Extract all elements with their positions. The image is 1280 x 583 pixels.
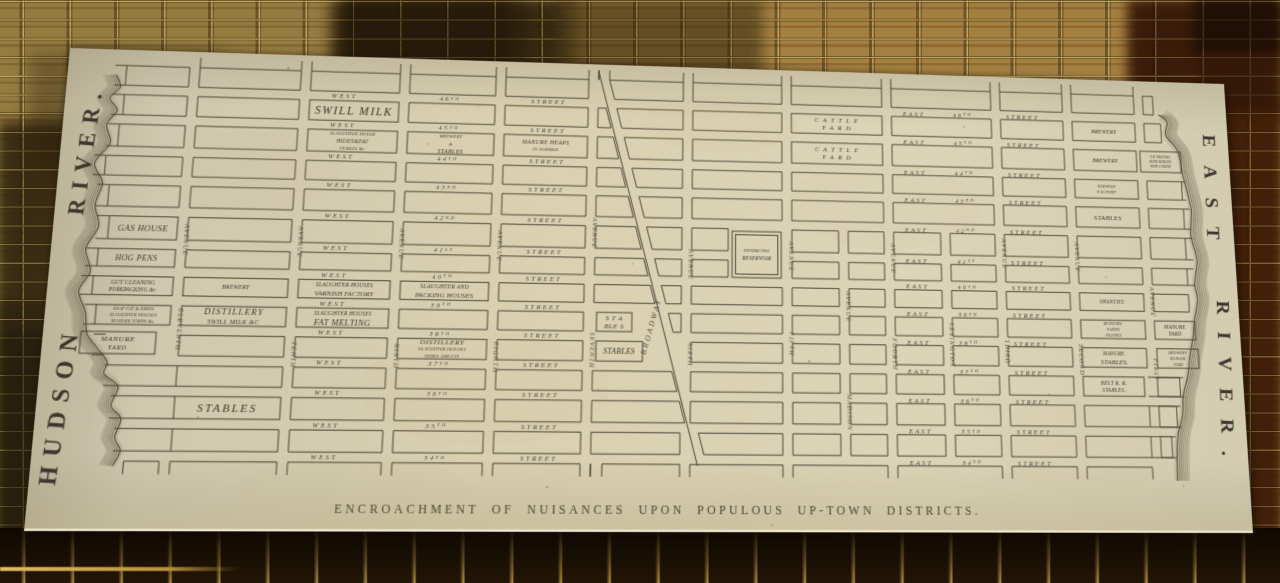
svg-text:FAT MELTING: FAT MELTING xyxy=(1149,155,1170,159)
svg-text:AVENUE: AVENUE xyxy=(1000,238,1008,269)
svg-text:WEST: WEST xyxy=(332,93,358,100)
svg-text:YARDS: YARDS xyxy=(1107,327,1121,332)
svg-text:C A T T L E: C A T T L E xyxy=(815,118,860,126)
svg-text:STABLES: STABLES xyxy=(603,347,635,356)
svg-text:WEST: WEST xyxy=(312,422,339,430)
svg-text:STREET: STREET xyxy=(525,304,562,312)
svg-text:EAST: EAST xyxy=(907,368,931,375)
svg-text:SHANTIES: SHANTIES xyxy=(1105,334,1121,338)
svg-text:C A T T L E: C A T T L E xyxy=(815,147,860,155)
svg-text:STABLES &c: STABLES &c xyxy=(339,145,364,150)
svg-text:STREET: STREET xyxy=(531,99,567,107)
svg-text:BREWERY: BREWERY xyxy=(1168,350,1187,355)
svg-text:FIFTH: FIFTH xyxy=(788,331,795,356)
svg-text:STABLES.: STABLES. xyxy=(1102,388,1126,394)
svg-text:MANURE: MANURE xyxy=(1169,356,1186,361)
svg-text:HIDE CURING: HIDE CURING xyxy=(1149,165,1171,169)
svg-text:BREWERY: BREWERY xyxy=(1091,130,1117,136)
svg-text:&: & xyxy=(449,141,453,146)
svg-text:AVENUE: AVENUE xyxy=(787,240,794,272)
svg-text:STABLES.: STABLES. xyxy=(1101,359,1129,366)
svg-text:STREET: STREET xyxy=(529,158,565,166)
svg-text:Y A R D: Y A R D xyxy=(822,155,852,162)
svg-text:VARNISH FACTORY: VARNISH FACTORY xyxy=(314,290,375,298)
svg-text:EAST: EAST xyxy=(905,258,929,265)
svg-text:DISTILLERY: DISTILLERY xyxy=(203,306,265,317)
svg-text:STREET: STREET xyxy=(1009,200,1043,207)
svg-text:SIXTH: SIXTH xyxy=(686,343,693,367)
svg-text:STREET: STREET xyxy=(520,456,557,464)
svg-text:SWILL MILK: SWILL MILK xyxy=(314,104,393,119)
svg-text:WEST: WEST xyxy=(323,245,350,252)
svg-text:MANURE.: MANURE. xyxy=(1102,351,1126,357)
svg-text:HIDES&FAT: HIDES&FAT xyxy=(335,139,369,146)
svg-text:SLAUGHTER HOUSES: SLAUGHTER HOUSES xyxy=(315,283,373,290)
svg-text:EAST: EAST xyxy=(908,398,932,405)
svg-text:GAS HOUSE: GAS HOUSE xyxy=(117,223,168,233)
svg-text:EAST: EAST xyxy=(905,284,929,291)
svg-text:STREET: STREET xyxy=(1015,370,1050,377)
svg-text:PACKING HOUSES: PACKING HOUSES xyxy=(414,292,474,300)
svg-text:STREET: STREET xyxy=(526,276,563,284)
svg-text:FAT MELTING: FAT MELTING xyxy=(313,318,371,328)
svg-text:SOAP FAT & HIDES: SOAP FAT & HIDES xyxy=(113,306,156,312)
svg-text:EAST: EAST xyxy=(902,111,926,118)
svg-text:WEST: WEST xyxy=(325,213,351,220)
svg-text:WEST: WEST xyxy=(320,300,347,308)
svg-text:AVENUE: AVENUE xyxy=(590,217,598,249)
svg-text:WEST: WEST xyxy=(316,360,343,368)
svg-text:LEXINGTON: LEXINGTON xyxy=(948,322,956,368)
svg-text:YARD: YARD xyxy=(1173,362,1183,367)
svg-text:STREET: STREET xyxy=(1007,142,1041,149)
svg-text:FOURTH: FOURTH xyxy=(891,337,898,370)
svg-text:DISTRIBUTING: DISTRIBUTING xyxy=(743,249,770,253)
svg-text:MADISON: MADISON xyxy=(845,393,852,431)
svg-text:EAST: EAST xyxy=(906,311,930,318)
svg-text:AVENUE: AVENUE xyxy=(844,290,851,322)
svg-text:STREET: STREET xyxy=(526,249,562,257)
svg-text:WEST: WEST xyxy=(330,122,356,129)
svg-text:SHANTIES: SHANTIES xyxy=(1100,300,1125,306)
svg-text:WEST: WEST xyxy=(318,329,345,337)
svg-text:STREET: STREET xyxy=(1011,260,1045,267)
svg-text:SECOND: SECOND xyxy=(1077,344,1085,376)
svg-text:EAST: EAST xyxy=(908,429,933,436)
svg-text:EAST: EAST xyxy=(909,460,934,467)
svg-text:VARNISH: VARNISH xyxy=(1097,185,1116,190)
svg-text:STABLES: STABLES xyxy=(437,148,463,155)
svg-text:AVENUE: AVENUE xyxy=(687,248,694,280)
svg-text:STABLES: STABLES xyxy=(1094,214,1122,222)
svg-text:EAST: EAST xyxy=(906,339,930,346)
svg-text:HOG PENS: HOG PENS xyxy=(114,253,158,263)
svg-text:STREET: STREET xyxy=(1014,341,1049,348)
svg-text:SLAUGHTER HOUSES: SLAUGHTER HOUSES xyxy=(314,310,372,317)
svg-text:Y A R D: Y A R D xyxy=(822,125,852,132)
svg-text:STREET: STREET xyxy=(527,217,563,225)
svg-text:BLE S: BLE S xyxy=(604,323,624,330)
svg-text:MANURE YARDS &c: MANURE YARDS &c xyxy=(110,318,154,324)
svg-text:BONE BOILING: BONE BOILING xyxy=(1149,160,1172,164)
svg-text:STREET: STREET xyxy=(528,187,564,195)
svg-text:PORKPACKING &c: PORKPACKING &c xyxy=(107,287,156,294)
svg-text:BREWERY: BREWERY xyxy=(439,134,463,139)
svg-text:S T A: S T A xyxy=(606,315,624,322)
svg-text:STREET: STREET xyxy=(1013,313,1048,320)
svg-text:SWILL MILK &C: SWILL MILK &C xyxy=(207,318,260,326)
svg-text:EAST: EAST xyxy=(902,139,926,146)
svg-text:YARD: YARD xyxy=(1169,332,1182,338)
svg-text:AVENUE: AVENUE xyxy=(495,230,503,262)
svg-text:AVENUE: AVENUE xyxy=(1073,241,1081,272)
svg-text:SLAUGHTER HOUSES: SLAUGHTER HOUSES xyxy=(109,312,157,318)
svg-text:BREWERY: BREWERY xyxy=(222,285,250,292)
svg-text:STREET: STREET xyxy=(1010,229,1044,236)
svg-text:MANURE: MANURE xyxy=(1163,325,1186,331)
svg-text:WEST: WEST xyxy=(321,272,348,279)
svg-text:STREET: STREET xyxy=(1008,172,1042,179)
svg-text:STABLES: STABLES xyxy=(196,402,258,415)
svg-text:BREWERY: BREWERY xyxy=(1092,159,1118,165)
svg-text:BELT R. R.: BELT R. R. xyxy=(1101,381,1127,387)
svg-text:GUT CLEANING: GUT CLEANING xyxy=(110,280,155,287)
svg-text:STREET: STREET xyxy=(1012,286,1046,293)
svg-text:STREET: STREET xyxy=(530,128,566,136)
svg-text:YARD: YARD xyxy=(108,345,127,351)
svg-text:FIRST: FIRST xyxy=(1152,357,1160,380)
svg-text:SLAUGHTER AND: SLAUGHTER AND xyxy=(420,284,469,291)
svg-text:WEST: WEST xyxy=(314,390,341,398)
svg-text:THIRD: THIRD xyxy=(1003,340,1010,365)
svg-text:MANURE: MANURE xyxy=(100,334,136,343)
svg-text:FACTORY: FACTORY xyxy=(1096,191,1116,196)
svg-text:IN SUMMER: IN SUMMER xyxy=(532,147,559,152)
svg-text:RESERVOIR: RESERVOIR xyxy=(741,256,772,262)
svg-text:MANURE HEAPS: MANURE HEAPS xyxy=(521,140,569,147)
svg-text:STREET: STREET xyxy=(1006,114,1040,121)
svg-text:TENTH: TENTH xyxy=(288,341,297,368)
